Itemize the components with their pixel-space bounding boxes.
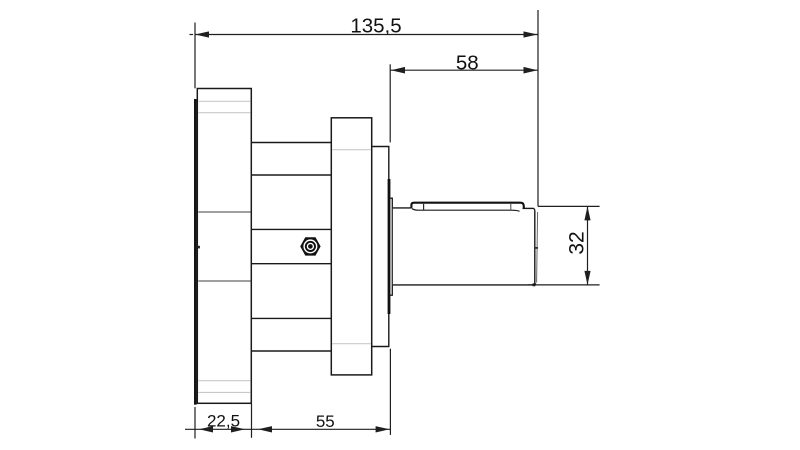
svg-text:135,5: 135,5 xyxy=(350,14,401,37)
svg-text:58: 58 xyxy=(456,51,479,74)
svg-text:32: 32 xyxy=(566,231,589,254)
svg-text:55: 55 xyxy=(316,412,335,431)
svg-text:22,5: 22,5 xyxy=(207,411,240,430)
